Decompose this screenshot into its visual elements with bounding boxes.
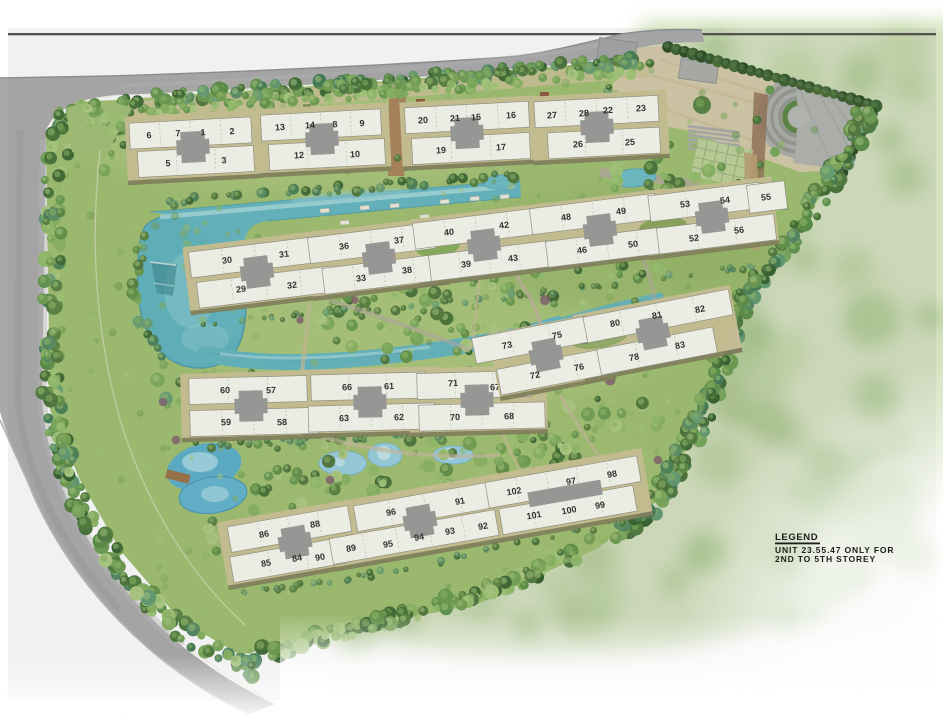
svg-text:2ND TO 5TH STOREY: 2ND TO 5TH STOREY <box>775 554 876 564</box>
svg-text:LEGEND: LEGEND <box>775 532 818 543</box>
